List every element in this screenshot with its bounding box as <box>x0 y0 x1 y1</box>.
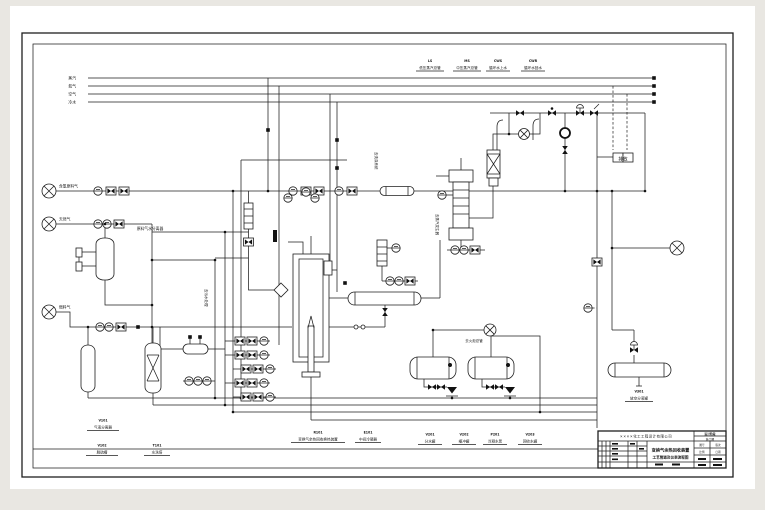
svg-text:冷凝水泵: 冷凝水泵 <box>488 439 503 444</box>
pid-drawing-page: 蒸汽 氮气 空气 冷水 LS 低压蒸汽总管 MS 中压蒸汽总管 CWS 循环水上… <box>0 0 765 510</box>
battery-limit-icon <box>42 184 56 198</box>
svg-text:V301: V301 <box>634 390 643 394</box>
stage-label: 设计阶段 <box>704 432 715 436</box>
inlet-1-label: 含氢原料气 <box>59 184 78 189</box>
header-label-steam: 蒸汽 <box>68 76 76 81</box>
drain-note: 去污水处理 <box>204 289 209 307</box>
desulfurizer-vessel-v102 <box>81 345 95 398</box>
svg-text:中间冷凝器: 中间冷凝器 <box>359 437 377 442</box>
header-label-nitrogen: 氮气 <box>68 84 76 89</box>
svg-text:CWS: CWS <box>494 59 503 63</box>
drawing-title-line1: 变换气余热回收装置 <box>652 447 691 454</box>
header-label-water: 冷水 <box>68 100 76 105</box>
vent-box-label: 排放 <box>618 155 628 162</box>
wash-note: 去洗涤系统 <box>374 152 379 170</box>
svg-text:MS: MS <box>464 59 470 63</box>
pid-diagram-canvas: 蒸汽 氮气 空气 冷水 LS 低压蒸汽总管 MS 中压蒸汽总管 CWS 循环水上… <box>0 0 765 510</box>
svg-text:P201: P201 <box>491 433 500 437</box>
svg-text:水洗塔: 水洗塔 <box>152 450 163 455</box>
field-scale: 比例 <box>699 450 705 454</box>
inline-filter <box>380 187 414 196</box>
svg-text:V203: V203 <box>525 433 534 437</box>
svg-text:放空分液罐: 放空分液罐 <box>630 396 648 401</box>
inlet-2-label: 天然气 <box>59 217 71 222</box>
battery-limit-icon <box>42 305 56 319</box>
svg-text:分水罐: 分水罐 <box>425 439 436 444</box>
svg-text:缓冲罐: 缓冲罐 <box>459 439 470 444</box>
field-rev: 版次 <box>715 443 721 447</box>
company-name: ××××化工工程设计有限公司 <box>620 434 672 439</box>
svg-text:V201: V201 <box>425 433 434 437</box>
svg-text:CWR: CWR <box>529 59 538 63</box>
svg-text:E101: E101 <box>364 431 373 435</box>
svg-text:变换气余热回收换热装置: 变换气余热回收换热装置 <box>298 437 338 442</box>
svg-text:低压蒸汽总管: 低压蒸汽总管 <box>419 65 441 70</box>
svg-text:V101: V101 <box>98 419 107 423</box>
separator-label: 原料气水分离器 <box>137 226 164 231</box>
svg-text:中压蒸汽总管: 中压蒸汽总管 <box>456 65 478 70</box>
svg-text:气液分离器: 气液分离器 <box>94 425 112 430</box>
drawing-title-line2: 工艺管道及仪表流程图 <box>653 455 689 460</box>
battery-limit-icon <box>42 217 56 231</box>
svg-text:循环水上水: 循环水上水 <box>489 65 507 70</box>
svg-text:回收水罐: 回收水罐 <box>523 439 538 444</box>
svg-text:脱硫槽: 脱硫槽 <box>97 450 108 455</box>
svg-text:V102: V102 <box>97 444 106 448</box>
field-date: 日期 <box>715 450 721 454</box>
svg-text:V202: V202 <box>459 433 468 437</box>
field-drawing-no: 图号 <box>699 443 705 447</box>
flare-note: 去火炬总管 <box>465 338 483 343</box>
inlet-3-label: 燃料气 <box>59 305 71 310</box>
flare-blower-icon <box>670 241 684 255</box>
svg-text:T101: T101 <box>153 444 162 448</box>
stage-value: 施工图 <box>706 437 715 441</box>
svg-text:循环水回水: 循环水回水 <box>524 65 542 70</box>
header-label-air: 空气 <box>68 92 76 97</box>
svg-text:R101: R101 <box>313 431 322 435</box>
steam-note: 去蒸汽发生器 <box>435 214 440 235</box>
svg-text:LS: LS <box>428 59 433 63</box>
